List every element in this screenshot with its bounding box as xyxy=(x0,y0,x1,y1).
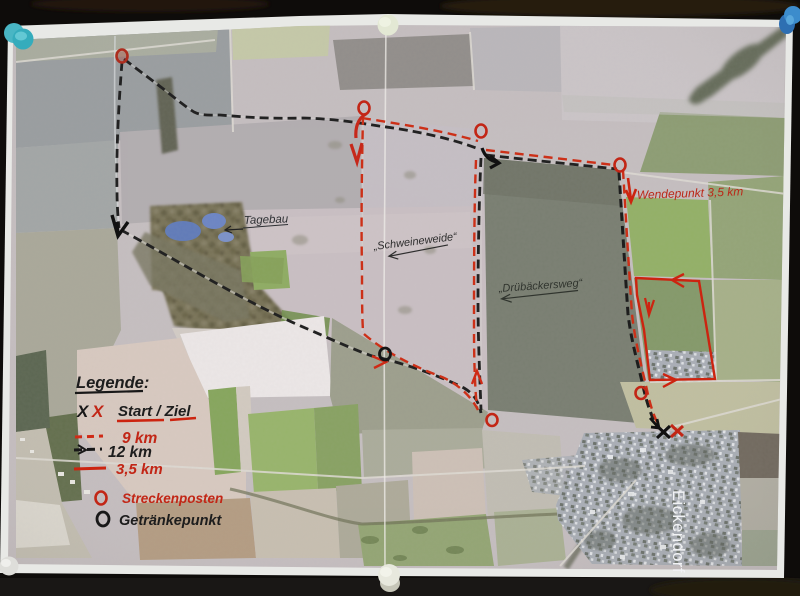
svg-text:Getränkepunkt: Getränkepunkt xyxy=(119,513,222,529)
svg-text:Eickendorf: Eickendorf xyxy=(669,490,687,573)
svg-text:X: X xyxy=(91,402,105,421)
svg-text:Streckenposten: Streckenposten xyxy=(122,491,223,506)
svg-text:12 km: 12 km xyxy=(108,444,152,461)
svg-text:3,5 km: 3,5 km xyxy=(116,461,163,478)
svg-text:X: X xyxy=(76,402,90,421)
svg-text:Legende:: Legende: xyxy=(76,374,149,392)
svg-text:Start / Ziel: Start / Ziel xyxy=(118,403,191,420)
